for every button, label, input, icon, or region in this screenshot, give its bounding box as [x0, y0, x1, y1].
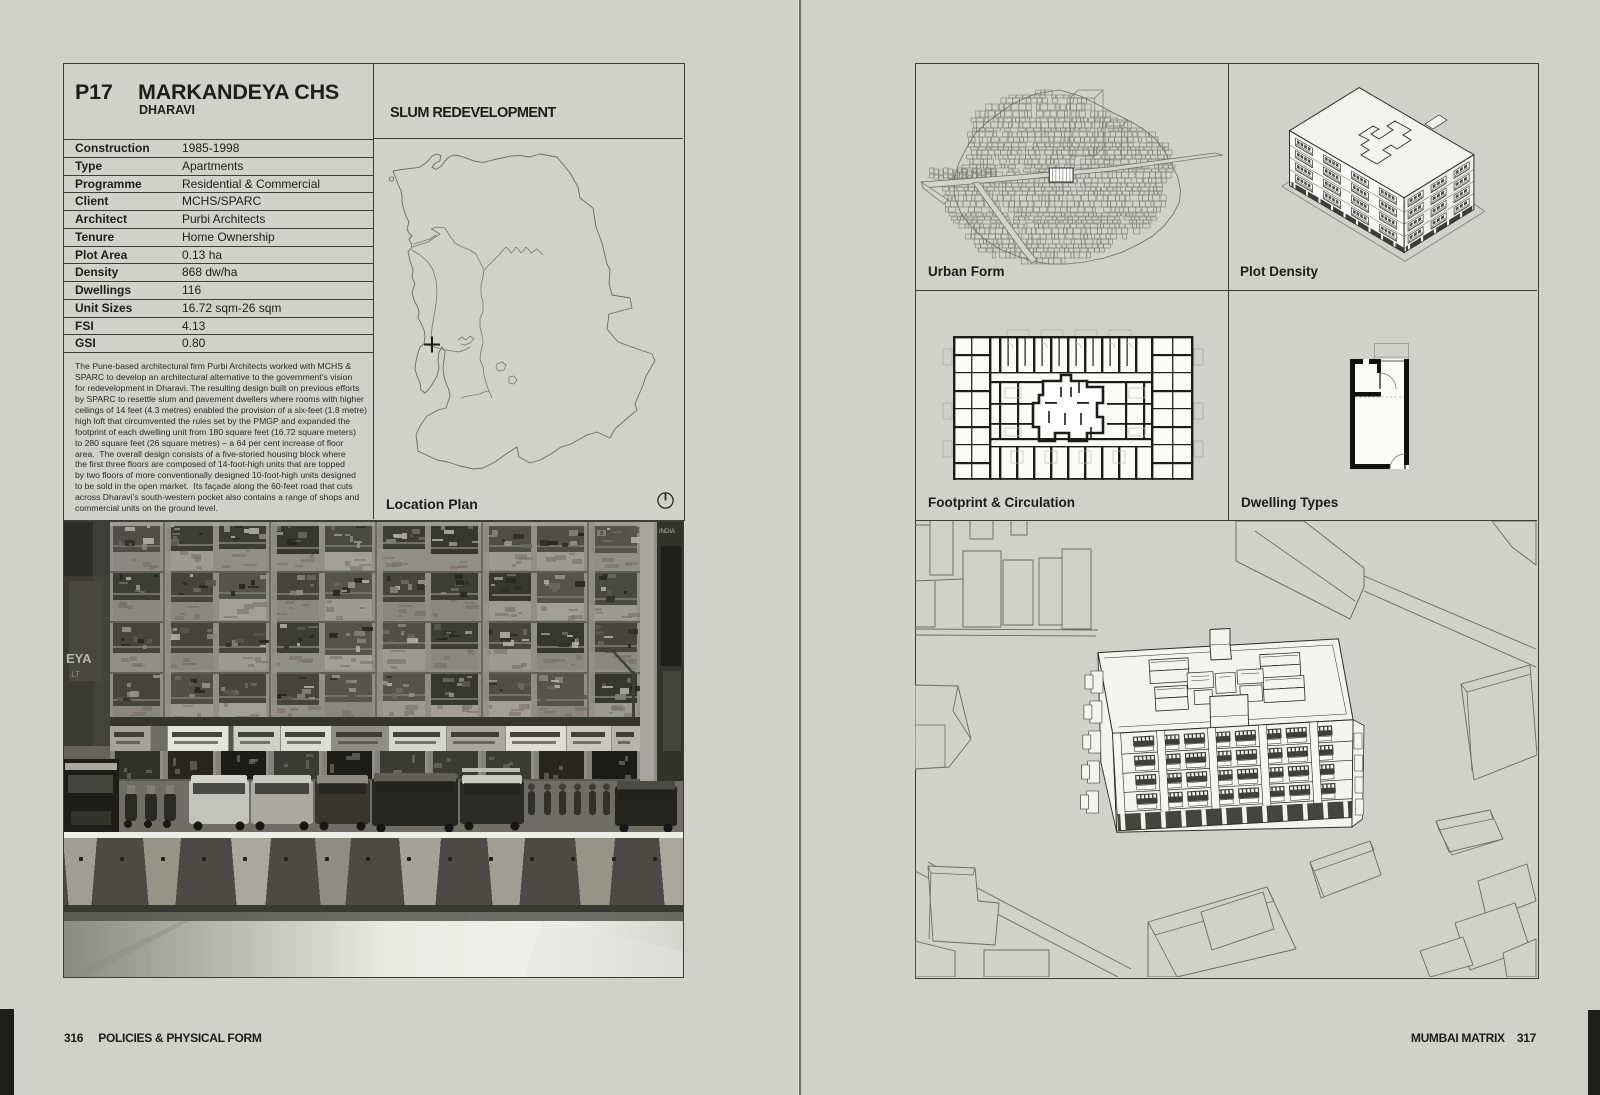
svg-text:INDIA: INDIA	[659, 529, 675, 535]
svg-text:.LT: .LT	[69, 670, 80, 679]
svg-text:EYA: EYA	[66, 651, 92, 666]
